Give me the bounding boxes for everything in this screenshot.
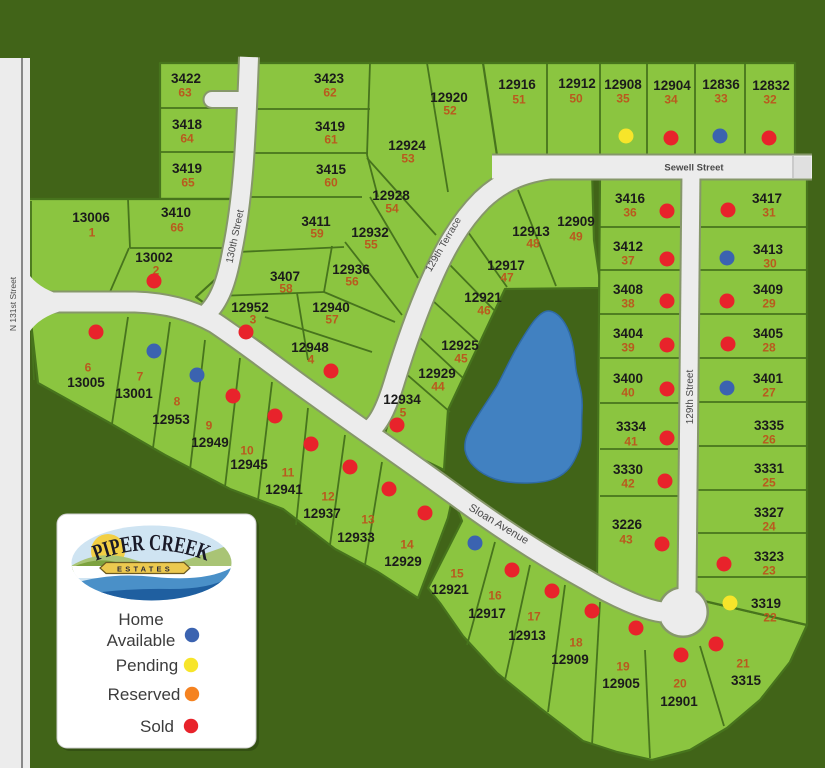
svg-text:3423: 3423 xyxy=(314,71,345,86)
svg-text:12917: 12917 xyxy=(468,606,506,621)
svg-text:ESTATES: ESTATES xyxy=(117,565,173,574)
svg-text:65: 65 xyxy=(181,176,195,190)
svg-text:3413: 3413 xyxy=(753,242,784,257)
svg-text:19: 19 xyxy=(616,660,630,674)
svg-text:7: 7 xyxy=(137,370,144,384)
svg-text:57: 57 xyxy=(325,313,339,327)
svg-text:12945: 12945 xyxy=(230,457,268,472)
svg-text:3408: 3408 xyxy=(613,282,644,297)
svg-text:11: 11 xyxy=(282,466,295,480)
svg-text:12933: 12933 xyxy=(337,530,375,545)
svg-text:38: 38 xyxy=(621,297,635,311)
svg-text:55: 55 xyxy=(364,238,378,252)
svg-text:3422: 3422 xyxy=(171,71,201,86)
svg-text:3412: 3412 xyxy=(613,239,643,254)
svg-text:12901: 12901 xyxy=(660,694,698,709)
svg-text:10: 10 xyxy=(240,444,254,458)
svg-text:3418: 3418 xyxy=(172,117,203,132)
svg-text:32: 32 xyxy=(763,93,777,107)
svg-text:41: 41 xyxy=(624,435,638,449)
svg-text:Available: Available xyxy=(107,631,176,650)
svg-text:3335: 3335 xyxy=(754,418,785,433)
svg-text:52: 52 xyxy=(443,104,457,118)
svg-text:12909: 12909 xyxy=(551,652,589,667)
svg-text:34: 34 xyxy=(664,93,678,107)
svg-text:24: 24 xyxy=(762,520,776,534)
svg-text:30: 30 xyxy=(763,257,777,271)
svg-text:53: 53 xyxy=(401,152,415,166)
svg-text:12913: 12913 xyxy=(508,628,546,643)
svg-text:42: 42 xyxy=(621,477,635,491)
svg-text:3319: 3319 xyxy=(751,596,781,611)
svg-text:3400: 3400 xyxy=(613,371,643,386)
svg-text:Pending: Pending xyxy=(116,656,178,675)
svg-text:6: 6 xyxy=(85,361,92,375)
svg-text:12912: 12912 xyxy=(558,76,596,91)
svg-text:15: 15 xyxy=(450,567,464,581)
svg-text:16: 16 xyxy=(488,589,502,603)
svg-text:12908: 12908 xyxy=(604,77,642,92)
svg-text:44: 44 xyxy=(431,380,445,394)
svg-text:63: 63 xyxy=(178,86,192,100)
svg-text:27: 27 xyxy=(762,386,776,400)
svg-text:64: 64 xyxy=(180,132,194,146)
svg-text:9: 9 xyxy=(206,419,213,433)
svg-text:3226: 3226 xyxy=(612,517,643,532)
svg-text:12: 12 xyxy=(321,490,335,504)
svg-text:25: 25 xyxy=(762,476,776,490)
svg-text:66: 66 xyxy=(170,221,184,235)
svg-text:3330: 3330 xyxy=(613,462,643,477)
svg-text:58: 58 xyxy=(279,282,293,296)
svg-text:13006: 13006 xyxy=(72,210,110,225)
svg-text:12941: 12941 xyxy=(265,482,303,497)
svg-text:36: 36 xyxy=(623,206,637,220)
svg-text:17: 17 xyxy=(527,610,541,624)
svg-text:3331: 3331 xyxy=(754,461,785,476)
svg-text:51: 51 xyxy=(512,93,526,107)
svg-text:3416: 3416 xyxy=(615,191,646,206)
svg-text:3327: 3327 xyxy=(754,505,784,520)
svg-text:12953: 12953 xyxy=(152,412,190,427)
svg-text:23: 23 xyxy=(762,564,776,578)
svg-text:1: 1 xyxy=(89,226,96,240)
svg-text:5: 5 xyxy=(400,406,407,420)
svg-text:56: 56 xyxy=(345,275,359,289)
svg-text:3419: 3419 xyxy=(172,161,202,176)
svg-text:31: 31 xyxy=(762,206,776,220)
svg-text:59: 59 xyxy=(310,227,324,241)
svg-text:12905: 12905 xyxy=(602,676,640,691)
svg-text:3409: 3409 xyxy=(753,282,783,297)
svg-text:28: 28 xyxy=(762,341,776,355)
svg-text:3417: 3417 xyxy=(752,191,782,206)
svg-text:12949: 12949 xyxy=(191,435,229,450)
svg-text:N 131st Street: N 131st Street xyxy=(8,276,18,331)
svg-text:48: 48 xyxy=(526,237,540,251)
svg-text:14: 14 xyxy=(400,538,414,552)
svg-text:4: 4 xyxy=(308,353,315,367)
svg-text:40: 40 xyxy=(621,386,635,400)
svg-text:47: 47 xyxy=(500,271,514,285)
svg-text:12904: 12904 xyxy=(653,78,691,93)
svg-text:29: 29 xyxy=(762,297,776,311)
svg-text:8: 8 xyxy=(174,395,181,409)
svg-text:18: 18 xyxy=(569,636,583,650)
svg-text:21: 21 xyxy=(736,657,750,671)
svg-text:3405: 3405 xyxy=(753,326,784,341)
svg-text:37: 37 xyxy=(621,254,635,268)
svg-text:62: 62 xyxy=(323,86,337,100)
svg-text:Sewell Street: Sewell Street xyxy=(664,163,724,174)
svg-text:43: 43 xyxy=(619,533,633,547)
svg-text:3404: 3404 xyxy=(613,326,644,341)
svg-text:3334: 3334 xyxy=(616,419,647,434)
svg-text:35: 35 xyxy=(616,92,630,106)
svg-text:3: 3 xyxy=(250,313,257,327)
svg-text:20: 20 xyxy=(673,677,687,691)
svg-text:61: 61 xyxy=(324,133,338,147)
svg-text:12836: 12836 xyxy=(702,77,740,92)
svg-text:129th Street: 129th Street xyxy=(685,370,696,425)
svg-text:33: 33 xyxy=(714,92,728,106)
svg-text:3410: 3410 xyxy=(161,205,191,220)
svg-text:45: 45 xyxy=(454,352,468,366)
svg-text:49: 49 xyxy=(569,230,583,244)
svg-text:12921: 12921 xyxy=(431,582,469,597)
svg-text:22: 22 xyxy=(763,611,777,625)
svg-text:Reserved: Reserved xyxy=(108,685,181,704)
svg-text:26: 26 xyxy=(762,433,776,447)
svg-text:13001: 13001 xyxy=(115,386,153,401)
svg-text:13: 13 xyxy=(361,513,375,527)
svg-text:12909: 12909 xyxy=(557,214,595,229)
svg-text:3323: 3323 xyxy=(754,549,785,564)
svg-text:54: 54 xyxy=(385,202,399,216)
svg-text:12937: 12937 xyxy=(303,506,341,521)
svg-text:46: 46 xyxy=(477,304,491,318)
svg-text:12916: 12916 xyxy=(498,77,536,92)
svg-text:39: 39 xyxy=(621,341,635,355)
svg-text:12929: 12929 xyxy=(384,554,422,569)
svg-text:60: 60 xyxy=(324,176,338,190)
svg-text:13005: 13005 xyxy=(67,375,105,390)
svg-text:Home: Home xyxy=(118,610,163,629)
svg-text:Sold: Sold xyxy=(140,717,174,736)
svg-text:50: 50 xyxy=(569,92,583,106)
svg-text:3315: 3315 xyxy=(731,673,762,688)
svg-text:12832: 12832 xyxy=(752,78,790,93)
svg-text:3401: 3401 xyxy=(753,371,784,386)
